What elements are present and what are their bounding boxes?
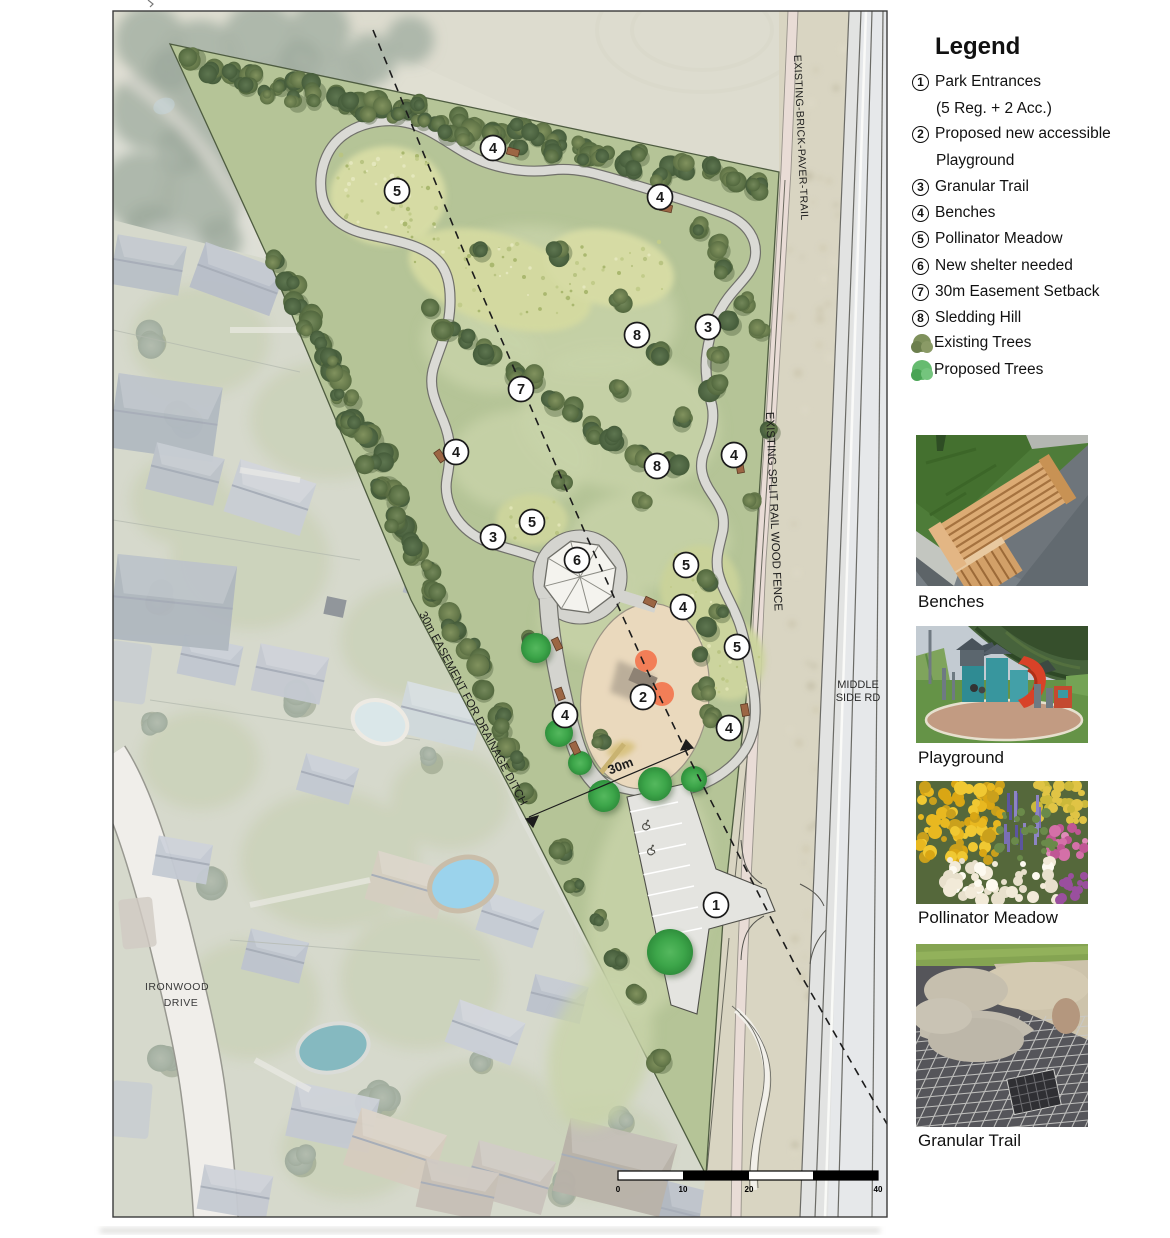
svg-text:1: 1 xyxy=(712,898,720,914)
svg-text:4: 4 xyxy=(561,708,569,724)
svg-text:5: 5 xyxy=(393,184,401,200)
svg-text:MIDDLE: MIDDLE xyxy=(837,679,879,691)
svg-text:4: 4 xyxy=(679,600,687,616)
svg-text:IRONWOOD: IRONWOOD xyxy=(145,981,209,993)
svg-text:40: 40 xyxy=(874,1185,883,1194)
svg-text:6: 6 xyxy=(573,553,581,569)
svg-text:2: 2 xyxy=(639,690,647,706)
svg-text:SIDE RD: SIDE RD xyxy=(836,692,881,704)
svg-text:5: 5 xyxy=(733,640,741,656)
svg-text:8: 8 xyxy=(633,328,641,344)
svg-text:10: 10 xyxy=(679,1185,688,1194)
svg-text:4: 4 xyxy=(489,141,497,157)
svg-text:0: 0 xyxy=(616,1185,621,1194)
svg-text:20: 20 xyxy=(745,1185,754,1194)
svg-text:4: 4 xyxy=(452,445,460,461)
svg-text:4: 4 xyxy=(730,448,738,464)
svg-text:3: 3 xyxy=(489,530,497,546)
svg-text:8: 8 xyxy=(653,459,661,475)
svg-text:5: 5 xyxy=(528,515,536,531)
svg-text:DRIVE: DRIVE xyxy=(164,997,199,1009)
svg-text:7: 7 xyxy=(517,382,525,398)
svg-text:4: 4 xyxy=(656,190,664,206)
svg-text:4: 4 xyxy=(725,721,733,737)
svg-text:5: 5 xyxy=(682,558,690,574)
svg-text:3: 3 xyxy=(704,320,712,336)
